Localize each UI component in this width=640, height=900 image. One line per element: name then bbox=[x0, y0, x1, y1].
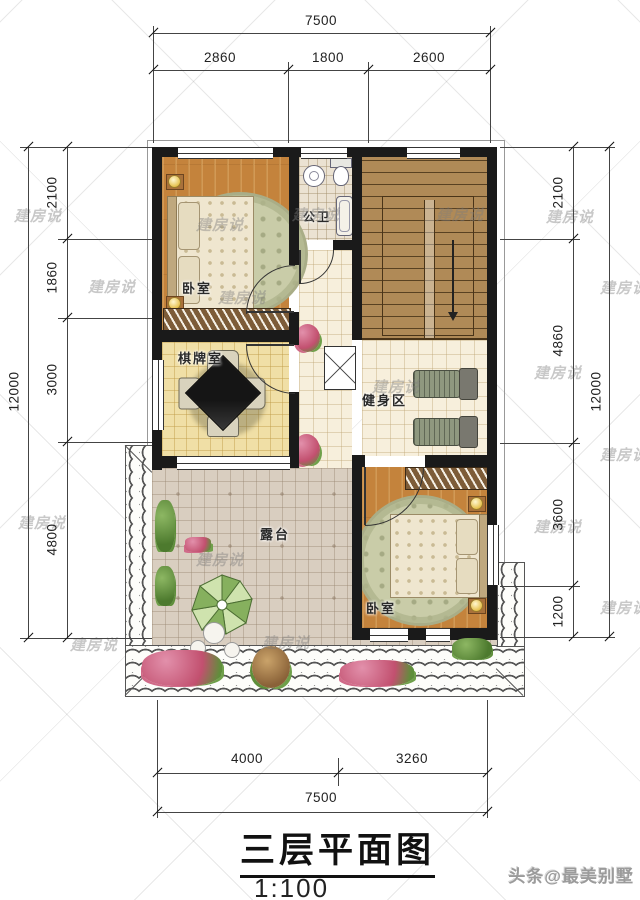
dim-right-total: 12000 bbox=[589, 357, 604, 427]
extension-line bbox=[368, 62, 369, 143]
extension-line bbox=[153, 26, 154, 143]
dim-right-seg: 2100 bbox=[551, 158, 566, 228]
dim-line bbox=[157, 773, 487, 774]
extension-line bbox=[500, 239, 580, 240]
extension-line bbox=[20, 638, 152, 639]
dim-line bbox=[573, 147, 574, 637]
dim-left-seg: 3000 bbox=[45, 345, 60, 415]
extension-line bbox=[58, 318, 152, 319]
dim-left-seg: 2100 bbox=[45, 158, 60, 228]
dim-line bbox=[153, 70, 491, 71]
dim-right-seg: 1200 bbox=[551, 577, 566, 647]
dim-left-seg: 1860 bbox=[45, 243, 60, 313]
drawing-scale: 1:100 bbox=[254, 873, 329, 900]
dim-right-seg: 4860 bbox=[551, 306, 566, 376]
dim-line bbox=[28, 147, 29, 638]
dimension-annotations: 7500 2860 1800 2600 2100 1860 3000 4800 … bbox=[0, 0, 640, 900]
dim-top-seg: 1800 bbox=[288, 50, 368, 65]
dim-right-seg: 3600 bbox=[551, 480, 566, 550]
dim-line bbox=[157, 812, 487, 813]
credit-watermark: 头条@最美别墅 bbox=[508, 862, 634, 887]
dim-bottom-seg: 3260 bbox=[372, 751, 452, 766]
extension-line bbox=[490, 26, 491, 143]
dim-line bbox=[609, 147, 610, 637]
extension-line bbox=[288, 62, 289, 143]
extension-line bbox=[58, 239, 152, 240]
dim-line bbox=[67, 147, 68, 638]
drawing-title: 三层平面图 bbox=[240, 831, 435, 878]
extension-line bbox=[58, 442, 152, 443]
dim-top-total: 7500 bbox=[271, 13, 371, 28]
extension-line bbox=[500, 443, 580, 444]
floor-plan-sheet: 卧室 公卫 棋牌室 健身区 露台 卧室 建房说 建房说 建房说 建房说 建房说 … bbox=[0, 0, 640, 900]
extension-line bbox=[487, 700, 488, 818]
dim-left-seg: 4800 bbox=[45, 505, 60, 575]
drawing-title-block: 三层平面图1:100 bbox=[240, 822, 470, 900]
dim-top-seg: 2860 bbox=[180, 50, 260, 65]
dim-line bbox=[153, 33, 491, 34]
extension-line bbox=[500, 586, 580, 587]
extension-line bbox=[500, 147, 615, 148]
dim-bottom-total: 7500 bbox=[281, 790, 361, 805]
dim-left-total: 12000 bbox=[7, 357, 22, 427]
dim-top-seg: 2600 bbox=[389, 50, 469, 65]
dim-bottom-seg: 4000 bbox=[207, 751, 287, 766]
extension-line bbox=[157, 700, 158, 818]
extension-line bbox=[20, 147, 152, 148]
